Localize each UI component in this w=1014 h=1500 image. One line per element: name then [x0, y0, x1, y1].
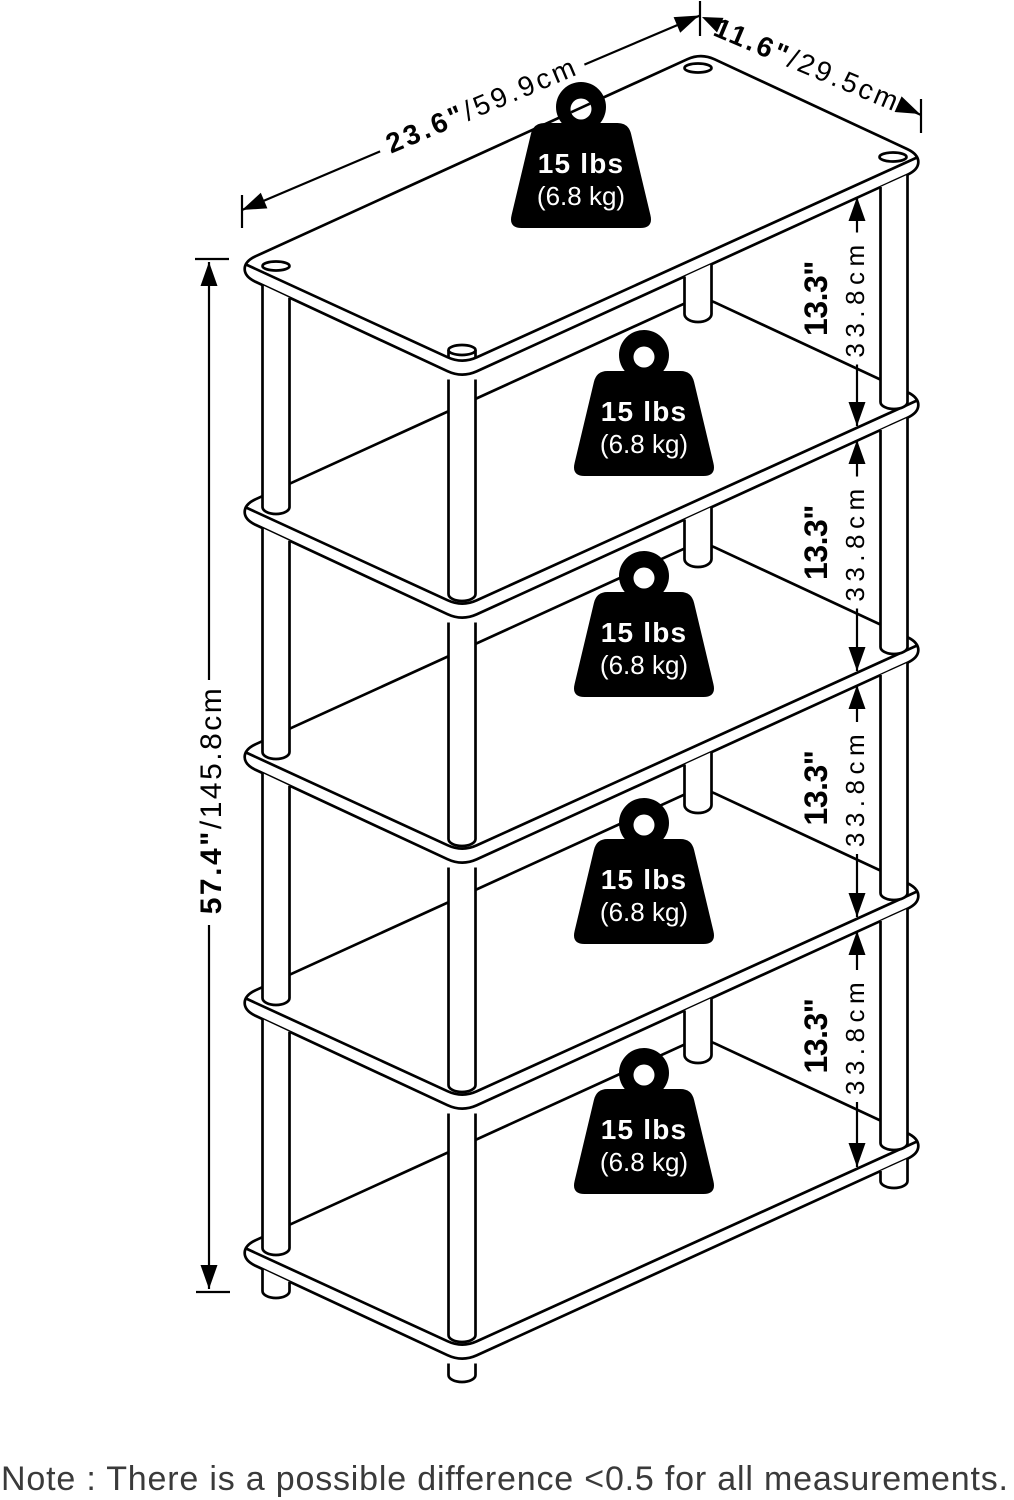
- svg-text:(6.8 kg): (6.8 kg): [600, 650, 688, 680]
- svg-text:13.3": 13.3": [798, 505, 834, 580]
- svg-text:33.8cm: 33.8cm: [840, 483, 870, 601]
- svg-text:13.3": 13.3": [798, 751, 834, 826]
- svg-text:Note : There is a possible dif: Note : There is a possible difference <0…: [1, 1460, 1008, 1498]
- svg-text:15 lbs: 15 lbs: [601, 1114, 688, 1145]
- svg-text:33.8cm: 33.8cm: [840, 239, 870, 357]
- svg-text:15 lbs: 15 lbs: [601, 396, 688, 427]
- svg-text:15 lbs: 15 lbs: [538, 148, 625, 179]
- svg-text:(6.8 kg): (6.8 kg): [600, 897, 688, 927]
- svg-text:(6.8 kg): (6.8 kg): [537, 181, 625, 211]
- svg-text:13.3": 13.3": [798, 999, 834, 1074]
- svg-text:13.3": 13.3": [798, 261, 834, 336]
- svg-text:(6.8 kg): (6.8 kg): [600, 1147, 688, 1177]
- svg-text:33.8cm: 33.8cm: [840, 977, 870, 1095]
- svg-text:15 lbs: 15 lbs: [601, 864, 688, 895]
- svg-text:33.8cm: 33.8cm: [840, 729, 870, 847]
- svg-text:57.4"/145.8cm: 57.4"/145.8cm: [195, 686, 228, 915]
- svg-text:15 lbs: 15 lbs: [601, 617, 688, 648]
- svg-text:(6.8 kg): (6.8 kg): [600, 429, 688, 459]
